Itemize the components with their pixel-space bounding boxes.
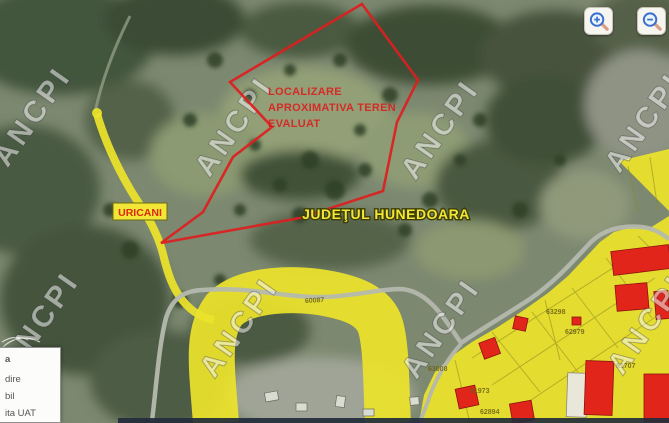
county-label: JUDEŢUL HUNEDOARA (302, 206, 470, 222)
map-viewport[interactable]: 60087 63298 62979 63008 61973 62894 6170… (0, 0, 669, 423)
parcel-number: 62894 (480, 409, 500, 416)
legend-item-building: dire (5, 371, 60, 388)
building (584, 361, 614, 416)
parcel-number: 62979 (565, 329, 585, 336)
zoom-in-button[interactable] (584, 7, 613, 35)
uat-limit-line (118, 418, 669, 423)
parcel-number: 60087 (305, 297, 325, 305)
annotation-line: APROXIMATIVA TEREN (268, 102, 396, 114)
building (572, 317, 581, 325)
town-label: URICANI (118, 207, 162, 219)
zoom-out-icon (640, 10, 663, 33)
parcel-number: 61973 (470, 388, 490, 395)
cadastral-map: 60087 63298 62979 63008 61973 62894 6170… (0, 0, 669, 423)
town-label-group: URICANI (113, 203, 167, 220)
annotation-line: EVALUAT (268, 118, 320, 130)
parcel-number: 63298 (546, 309, 566, 316)
legend-item-parcel: bil (5, 388, 60, 405)
zoom-controls (584, 7, 666, 35)
building (513, 316, 528, 331)
annotation-line: LOCALIZARE (268, 86, 342, 98)
legend-item-uat-limit: ita UAT (5, 405, 60, 422)
legend-title: a (5, 351, 60, 368)
zoom-out-button[interactable] (637, 7, 666, 35)
building (644, 374, 669, 422)
zoom-in-icon (587, 10, 610, 33)
legend-panel: a dire bil ita UAT (0, 347, 61, 423)
